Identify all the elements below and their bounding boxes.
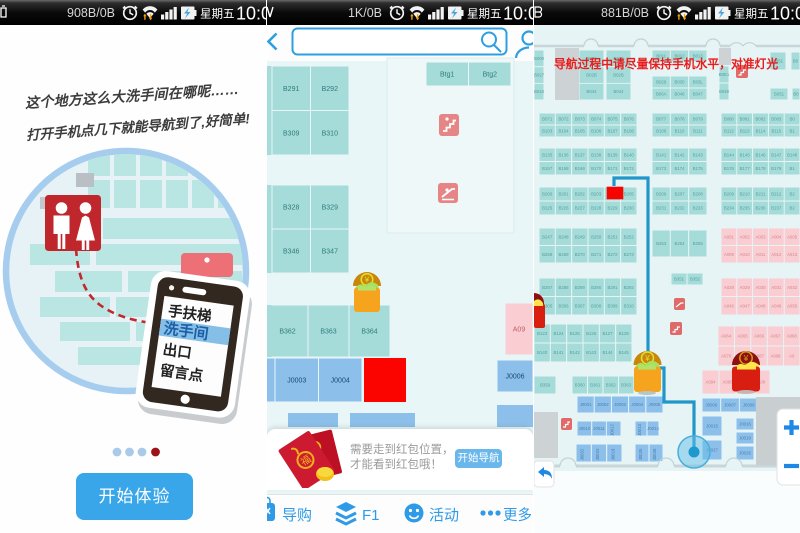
svg-text:A047: A047: [740, 303, 751, 308]
svg-text:星期五: 星期五: [467, 8, 502, 21]
svg-text:A068: A068: [787, 334, 798, 339]
svg-text:B231: B231: [656, 206, 667, 211]
svg-text:J0014: J0014: [647, 426, 659, 431]
svg-text:A011: A011: [756, 252, 766, 257]
svg-text:B228: B228: [591, 206, 602, 211]
svg-text:B203: B203: [591, 192, 602, 197]
svg-text:B081: B081: [740, 117, 751, 122]
svg-text:J0032: J0032: [580, 448, 585, 460]
svg-text:B290: B290: [591, 285, 602, 290]
svg-text:B288: B288: [558, 285, 569, 290]
svg-text:B077: B077: [656, 117, 667, 122]
svg-text:导航过程中请尽量保持手机水平，对准灯光: 导航过程中请尽量保持手机水平，对准灯光: [554, 57, 778, 71]
svg-text:A095: A095: [722, 380, 733, 385]
svg-text:Btg2: Btg2: [483, 72, 498, 79]
svg-text:B346: B346: [283, 249, 299, 256]
svg-text:B142: B142: [570, 350, 581, 355]
svg-text:B138: B138: [591, 152, 602, 157]
svg-text:B292: B292: [624, 285, 635, 290]
svg-text:B173: B173: [656, 166, 667, 171]
svg-text:A064: A064: [721, 334, 732, 339]
svg-text:B072: B072: [558, 117, 569, 122]
svg-text:B043: B043: [534, 89, 545, 94]
svg-text:B309: B309: [607, 303, 618, 308]
svg-text:B047: B047: [693, 92, 704, 97]
svg-text:A005: A005: [787, 234, 798, 239]
svg-text:B175: B175: [693, 166, 704, 171]
svg-text:B233: B233: [693, 206, 704, 211]
svg-text:A070: A070: [721, 354, 732, 359]
svg-text:B140: B140: [624, 152, 635, 157]
svg-text:B363: B363: [621, 383, 632, 388]
svg-text:J0003: J0003: [614, 402, 626, 407]
svg-text:A067: A067: [770, 334, 781, 339]
svg-text:B074: B074: [591, 117, 602, 122]
svg-text:B071: B071: [542, 117, 553, 122]
svg-text:A048: A048: [755, 303, 766, 308]
svg-text:J0036: J0036: [652, 448, 657, 460]
svg-text:B2: B2: [789, 206, 795, 211]
svg-text:B046: B046: [674, 92, 685, 97]
svg-text:B307: B307: [575, 303, 586, 308]
svg-text:B226: B226: [558, 206, 569, 211]
svg-text:B144: B144: [602, 350, 613, 355]
svg-text:B172: B172: [624, 166, 635, 171]
svg-text:B029: B029: [656, 80, 667, 85]
svg-text:B291: B291: [607, 285, 618, 290]
svg-text:J0011: J0011: [593, 426, 605, 431]
svg-text:881B/0B: 881B/0B: [601, 6, 649, 20]
svg-text:B268: B268: [542, 252, 553, 257]
svg-text:B248: B248: [558, 234, 569, 239]
svg-text:B229: B229: [607, 206, 618, 211]
svg-text:J0006: J0006: [705, 403, 717, 408]
svg-text:B044: B044: [613, 89, 624, 94]
svg-text:B128: B128: [619, 331, 630, 336]
svg-text:B075: B075: [607, 117, 618, 122]
svg-text:星期五: 星期五: [200, 8, 235, 21]
svg-text:J0001: J0001: [580, 402, 592, 407]
svg-text:B289: B289: [575, 285, 586, 290]
svg-text:B272: B272: [607, 252, 618, 257]
svg-text:B144: B144: [724, 152, 735, 157]
svg-text:B176: B176: [724, 166, 735, 171]
svg-text:B114: B114: [756, 129, 766, 134]
svg-text:B030: B030: [674, 80, 685, 85]
svg-text:B109: B109: [656, 129, 667, 134]
svg-text:A010: A010: [740, 252, 751, 257]
svg-text:Btg1: Btg1: [440, 72, 455, 79]
svg-text:B106: B106: [591, 129, 602, 134]
svg-text:A028: A028: [724, 285, 735, 290]
svg-text:J0019: J0019: [739, 436, 751, 441]
svg-text:A049: A049: [771, 303, 782, 308]
svg-text:J0004: J0004: [331, 378, 350, 385]
svg-text:B347: B347: [322, 249, 338, 256]
svg-text:B124: B124: [553, 331, 564, 336]
svg-text:B140: B140: [537, 350, 548, 355]
svg-text:B251: B251: [607, 234, 618, 239]
svg-text:B361: B361: [590, 383, 601, 388]
svg-text:B143: B143: [586, 350, 597, 355]
svg-text:J0004: J0004: [631, 402, 643, 407]
svg-text:B205: B205: [624, 192, 635, 197]
svg-text:B171: B171: [607, 166, 618, 171]
svg-text:B02B: B02B: [586, 73, 597, 78]
svg-text:J0008: J0008: [743, 403, 755, 408]
svg-text:J0002: J0002: [597, 402, 609, 407]
svg-text:B225: B225: [542, 206, 553, 211]
svg-text:B0: B0: [793, 92, 799, 97]
svg-text:B141: B141: [656, 152, 667, 157]
svg-text:B237: B237: [771, 206, 782, 211]
svg-text:J0006: J0006: [505, 374, 524, 381]
svg-text:导购: 导购: [282, 507, 312, 524]
svg-text:¥: ¥: [743, 353, 749, 363]
svg-text:A032: A032: [787, 285, 798, 290]
svg-text:B2: B2: [789, 192, 795, 197]
svg-text:B177: B177: [740, 166, 751, 171]
svg-text:B206: B206: [656, 192, 667, 197]
svg-text:B174: B174: [674, 166, 685, 171]
svg-text:A09: A09: [513, 327, 526, 334]
svg-text:B202: B202: [575, 192, 586, 197]
svg-text:B352: B352: [690, 277, 701, 282]
svg-text:A003: A003: [755, 234, 766, 239]
svg-text:J0007: J0007: [724, 403, 736, 408]
svg-text:B227: B227: [575, 206, 586, 211]
svg-text:B125: B125: [570, 331, 581, 336]
svg-text:A0: A0: [789, 354, 795, 359]
svg-text:A088: A088: [770, 354, 781, 359]
svg-text:10:00: 10:00: [503, 4, 533, 24]
svg-text:B209: B209: [724, 192, 735, 197]
svg-text:B247: B247: [542, 234, 553, 239]
svg-text:1K/0B: 1K/0B: [348, 6, 382, 20]
svg-text:B201: B201: [558, 192, 569, 197]
svg-text:B292: B292: [322, 86, 338, 93]
svg-text:B360: B360: [575, 383, 586, 388]
svg-text:B170: B170: [591, 166, 602, 171]
svg-text:B145: B145: [619, 350, 630, 355]
svg-text:A002: A002: [740, 234, 751, 239]
svg-text:B0: B0: [789, 117, 795, 122]
svg-text:J0015: J0015: [706, 424, 718, 429]
svg-text:F1: F1: [362, 507, 380, 524]
svg-text:B082: B082: [755, 117, 766, 122]
svg-text:B0E1: B0E1: [719, 72, 730, 77]
svg-text:B207: B207: [674, 192, 685, 197]
svg-text:B178: B178: [755, 166, 766, 171]
svg-text:A030: A030: [755, 285, 766, 290]
svg-text:B139: B139: [607, 152, 618, 157]
svg-text:A094: A094: [705, 380, 716, 385]
svg-text:J0012: J0012: [610, 424, 615, 436]
svg-text:B111: B111: [693, 129, 703, 134]
svg-text:B328: B328: [283, 205, 299, 212]
svg-text:活动: 活动: [429, 507, 459, 524]
svg-text:B137: B137: [575, 152, 586, 157]
svg-text:B1: B1: [789, 129, 795, 134]
svg-text:B104: B104: [558, 129, 569, 134]
svg-text:B123: B123: [537, 331, 548, 336]
svg-text:B147: B147: [771, 152, 782, 157]
svg-text:B249: B249: [575, 234, 586, 239]
svg-text:B142: B142: [674, 152, 685, 157]
svg-text:B076: B076: [624, 117, 635, 122]
svg-text:A009: A009: [724, 252, 735, 257]
svg-text:B309: B309: [283, 130, 299, 137]
svg-text:B364: B364: [361, 329, 377, 336]
svg-text:A004: A004: [771, 234, 782, 239]
svg-text:B06A: B06A: [656, 92, 667, 97]
svg-text:B048: B048: [719, 89, 730, 94]
svg-text:A001: A001: [724, 234, 735, 239]
svg-text:B143: B143: [693, 152, 704, 157]
svg-text:B234: B234: [724, 206, 735, 211]
svg-text:B255: B255: [693, 241, 704, 246]
svg-text:J0005: J0005: [649, 402, 661, 407]
svg-text:B310: B310: [322, 130, 338, 137]
svg-text:B107: B107: [607, 129, 618, 134]
svg-text:B273: B273: [624, 252, 635, 257]
svg-text:J0033: J0033: [595, 448, 600, 460]
svg-text:A031: A031: [771, 285, 782, 290]
svg-text:B351: B351: [674, 277, 685, 282]
svg-text:B02B: B02B: [613, 73, 624, 78]
svg-text:B108: B108: [624, 129, 635, 134]
svg-text:J0018: J0018: [610, 448, 615, 460]
svg-text:B073: B073: [575, 117, 586, 122]
svg-text:A029: A029: [740, 285, 751, 290]
svg-text:更多: 更多: [503, 507, 532, 524]
svg-text:B306: B306: [558, 303, 569, 308]
svg-text:B027: B027: [534, 73, 545, 78]
svg-text:B051: B051: [774, 92, 785, 97]
svg-text:B271: B271: [591, 252, 602, 257]
svg-text:B115: B115: [771, 129, 781, 134]
svg-text:B211: B211: [756, 192, 766, 197]
svg-text:J0010: J0010: [578, 426, 590, 431]
svg-text:B362: B362: [279, 329, 295, 336]
svg-text:B03L: B03L: [693, 80, 704, 85]
svg-text:J0003: J0003: [287, 378, 306, 385]
svg-text:B136: B136: [558, 152, 569, 157]
svg-text:10:00: 10:00: [236, 4, 266, 24]
svg-text:B141: B141: [553, 350, 564, 355]
svg-text:B169: B169: [575, 166, 586, 171]
svg-text:A012: A012: [771, 252, 782, 257]
svg-text:B210: B210: [740, 192, 751, 197]
svg-text:J0035: J0035: [638, 448, 643, 460]
svg-text:B253: B253: [656, 241, 667, 246]
svg-text:B230: B230: [624, 206, 635, 211]
svg-text:B083: B083: [771, 117, 782, 122]
svg-text:J0016: J0016: [739, 422, 751, 427]
svg-text:B078: B078: [674, 117, 685, 122]
svg-text:B135: B135: [542, 152, 553, 157]
svg-text:B362: B362: [606, 383, 617, 388]
svg-text:B112: B112: [724, 129, 734, 134]
svg-text:B126: B126: [586, 331, 597, 336]
svg-text:B291: B291: [283, 86, 299, 93]
svg-text:J0013: J0013: [637, 424, 642, 436]
svg-text:B359: B359: [540, 383, 551, 388]
svg-text:B110: B110: [675, 129, 685, 134]
svg-text:B363: B363: [320, 329, 336, 336]
svg-text:B044: B044: [586, 89, 597, 94]
svg-text:B200: B200: [542, 192, 553, 197]
svg-text:B127: B127: [602, 331, 613, 336]
svg-text:B254: B254: [674, 241, 685, 246]
svg-text:B270: B270: [575, 252, 586, 257]
svg-text:J0026: J0026: [739, 451, 751, 456]
svg-text:B208: B208: [693, 192, 704, 197]
svg-text:B310: B310: [624, 303, 635, 308]
svg-text:A066: A066: [754, 334, 765, 339]
svg-text:B080: B080: [724, 117, 735, 122]
svg-text:B0: B0: [793, 59, 799, 64]
svg-text:B236: B236: [755, 206, 766, 211]
svg-text:B287: B287: [542, 285, 553, 290]
svg-text:B148: B148: [787, 152, 798, 157]
svg-text:B079: B079: [693, 117, 704, 122]
svg-text:B308: B308: [591, 303, 602, 308]
svg-text:B105: B105: [575, 129, 586, 134]
svg-text:B232: B232: [674, 206, 685, 211]
svg-text:B235: B235: [740, 206, 751, 211]
svg-text:B103: B103: [542, 129, 553, 134]
svg-text:A013: A013: [787, 252, 798, 257]
svg-text:B212: B212: [771, 192, 782, 197]
svg-text:10:00: 10:00: [770, 4, 800, 24]
svg-text:B329: B329: [322, 205, 338, 212]
svg-text:B113: B113: [740, 129, 750, 134]
svg-text:B1: B1: [789, 166, 795, 171]
svg-text:B252: B252: [624, 234, 635, 239]
svg-text:B269: B269: [558, 252, 569, 257]
svg-text:B000: B000: [534, 56, 545, 61]
svg-text:星期五: 星期五: [734, 8, 769, 21]
svg-text:A065: A065: [738, 334, 749, 339]
svg-text:B146: B146: [755, 152, 766, 157]
svg-text:B168: B168: [558, 166, 569, 171]
svg-text:A046: A046: [724, 303, 735, 308]
svg-text:908B/0B: 908B/0B: [67, 6, 115, 20]
svg-text:B167: B167: [542, 166, 553, 171]
svg-text:B179: B179: [771, 166, 782, 171]
svg-text:B250: B250: [591, 234, 602, 239]
svg-text:A050: A050: [787, 303, 798, 308]
svg-text:B145: B145: [740, 152, 751, 157]
